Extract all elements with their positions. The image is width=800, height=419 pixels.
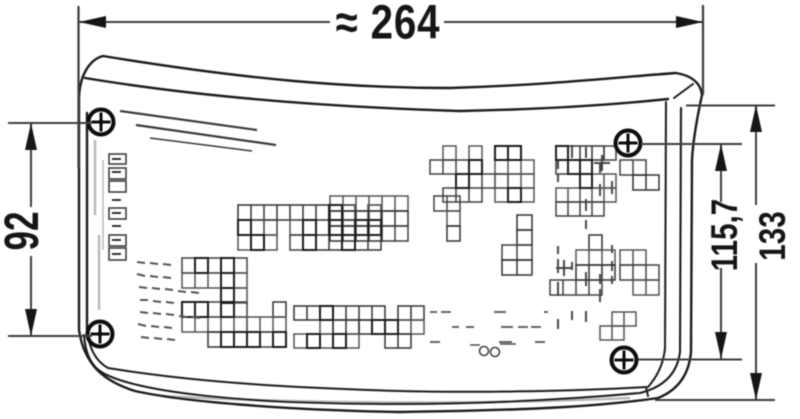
svg-text:92: 92 <box>0 212 48 251</box>
svg-text:≈ 264: ≈ 264 <box>336 0 441 49</box>
svg-text:115,7: 115,7 <box>705 199 746 271</box>
svg-text:133: 133 <box>753 211 794 260</box>
